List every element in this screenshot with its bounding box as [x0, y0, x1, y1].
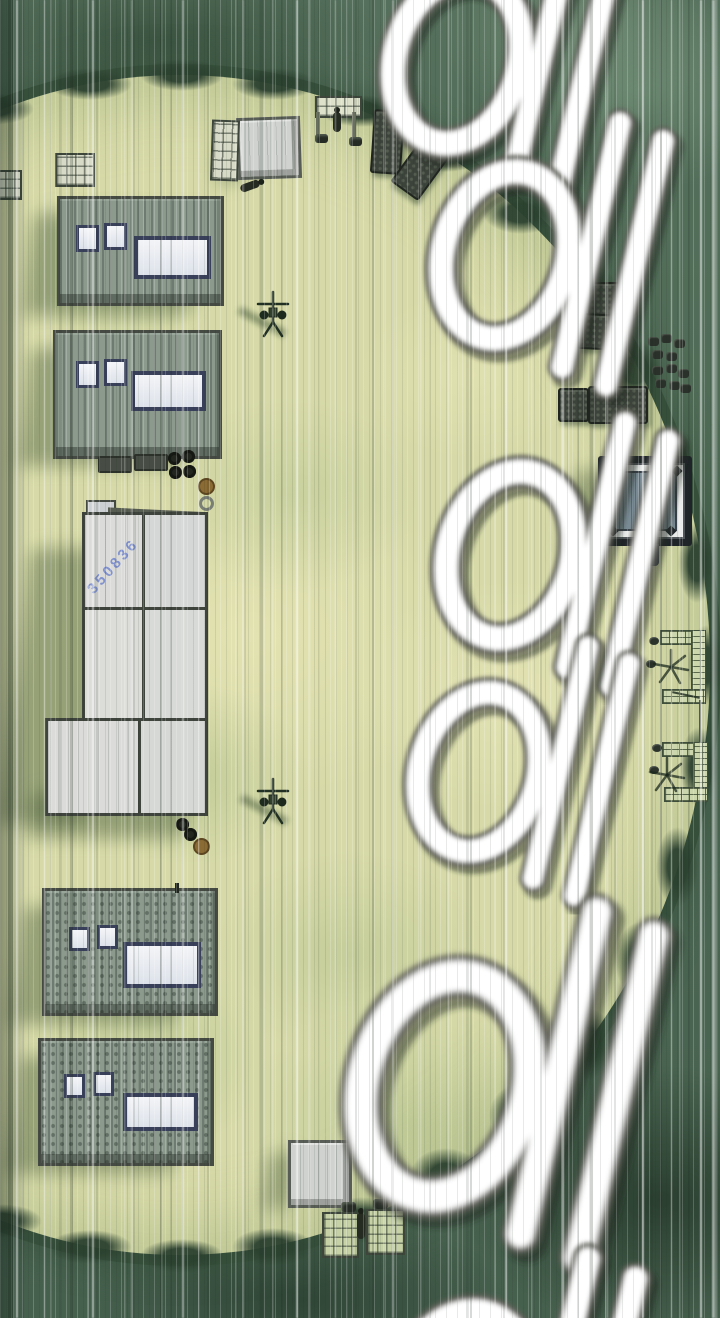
webtoon-panel: 350836 — [0, 0, 720, 1318]
speed-lines — [0, 0, 720, 1318]
